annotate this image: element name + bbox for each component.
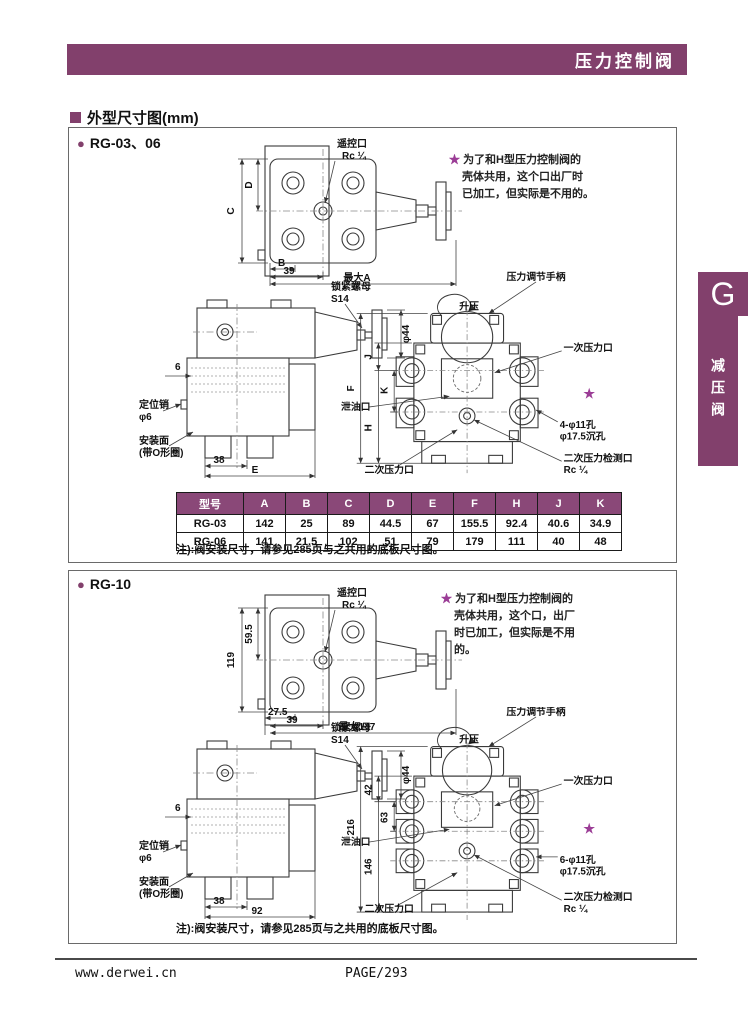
note-line: 壳体共用，这个口出厂时 [449, 169, 659, 186]
panel2-title-label: RG-10 [90, 576, 131, 592]
cell: 89 [328, 515, 370, 533]
note-line: 壳体共用，这个口，出厂 [441, 608, 656, 625]
dim-38: 38 [213, 455, 225, 466]
dim-27-5: 27.5 [268, 707, 288, 718]
dim-92: 92 [251, 906, 263, 917]
col-header: B [286, 493, 328, 515]
centerlines [256, 598, 462, 723]
handle-label: 压力调节手柄 [507, 270, 566, 283]
col-header: E [412, 493, 454, 515]
centerlines [256, 149, 462, 274]
drain-port-label: 泄油口 [341, 400, 371, 413]
note-line: 为了和H型压力控制阀的 [455, 593, 573, 605]
rg03-front-view-drawing: 压力调节手柄 升压 一次压力口 F J K H ★ 4-φ11孔 φ17.5沉孔… [339, 270, 674, 487]
panel1-title-label: RG-03、06 [90, 133, 161, 153]
mount-label: 安装面 [139, 434, 169, 447]
rg03-top-view-drawing: 遥控口 Rc ¼ C D B 39 最大A [172, 136, 472, 286]
cell: 179 [454, 533, 496, 551]
pin-label: 定位销 [139, 398, 169, 411]
raise-label: 升压 [459, 300, 479, 313]
dim-6: 6 [175, 362, 181, 373]
bullet-icon: ● [77, 136, 85, 151]
pin-dia: φ6 [139, 853, 152, 864]
panel2-title: ● RG-10 [77, 576, 131, 592]
rg10-mounting-note: 注):阀安装尺寸，请参见285页与之共用的底板尺寸图。 [176, 920, 444, 936]
pin-label: 定位销 [139, 839, 169, 852]
footer-page-number: PAGE/293 [345, 966, 408, 981]
star-icon: ★ [583, 821, 595, 836]
dim-38: 38 [213, 896, 225, 907]
spring-lines [191, 368, 285, 392]
dim-146: 146 [364, 858, 375, 875]
remote-port-label: 遥控口 [337, 586, 367, 599]
dim-59-5: 59.5 [244, 624, 255, 644]
col-header: 型号 [177, 493, 244, 515]
spring-lines [191, 809, 285, 833]
dim-h: H [364, 424, 375, 431]
table-row: RG-03 142 25 89 44.5 67 155.5 92.4 40.6 … [177, 515, 622, 533]
holes-label-2: φ17.5沉孔 [560, 430, 606, 443]
dim-39: 39 [283, 266, 295, 277]
cell: 40.6 [538, 515, 580, 533]
mount-oring: (带O形圈) [139, 446, 183, 459]
col-header: J [538, 493, 580, 515]
rg03-mounting-note: 注):阀安装尺寸，请参见285页与之共用的底板尺寸图。 [176, 541, 444, 557]
dim-f: F [346, 385, 357, 391]
rg10-front-view-drawing: 压力调节手柄 升压 一次压力口 216 42 63 146 ★ 6-φ11孔 φ… [339, 707, 674, 924]
holes-label-1: 6-φ11孔 [560, 853, 596, 866]
page-title: 压力控制阀 [575, 47, 675, 72]
cell: 142 [244, 515, 286, 533]
dim-c: C [226, 207, 237, 214]
cell: 44.5 [370, 515, 412, 533]
dimension-lines [238, 159, 456, 286]
tab-section-letter: G [698, 272, 748, 316]
dim-42: 42 [364, 784, 375, 795]
remote-port-thread: Rc ¼ [342, 151, 367, 162]
note-line: 为了和H型压力控制阀的 [463, 154, 581, 166]
dim-k: K [379, 386, 390, 394]
section-title: 外型尺寸图(mm) [87, 107, 199, 128]
remote-port-label: 遥控口 [337, 137, 367, 150]
dim-d: D [244, 181, 255, 188]
dim-e: E [252, 465, 259, 476]
centerlines [390, 743, 544, 920]
tab-category-text: 减压阀 [708, 358, 728, 424]
primary-port-label: 一次压力口 [564, 341, 613, 354]
star-icon: ★ [583, 386, 595, 401]
footer-website: www.derwei.cn [75, 966, 177, 981]
dim-j: J [364, 354, 375, 359]
col-header: F [454, 493, 496, 515]
raise-label: 升压 [459, 733, 479, 746]
tab-category-label: 减压阀 [698, 316, 738, 466]
centerlines [390, 310, 544, 474]
secondary-port-label: 二次压力口 [365, 902, 414, 915]
dim-216: 216 [346, 819, 357, 836]
cell: 48 [580, 533, 622, 551]
mount-oring: (带O形圈) [139, 887, 183, 900]
dim-6: 6 [175, 803, 181, 814]
gauge-port-label: 二次压力检测口 [564, 451, 633, 464]
cell: 155.5 [454, 515, 496, 533]
gauge-port-label: 二次压力检测口 [564, 890, 633, 903]
cell: 67 [412, 515, 454, 533]
col-header: K [580, 493, 622, 515]
cell: 25 [286, 515, 328, 533]
drain-port-label: 泄油口 [341, 835, 371, 848]
cell: RG-03 [177, 515, 244, 533]
tab-letter: G [711, 276, 736, 313]
pin-dia: φ6 [139, 412, 152, 423]
section-title-row: 外型尺寸图(mm) [70, 107, 199, 128]
panel-rg03-06: ● RG-03、06 ★ 为了和H型压力控制阀的 壳体共用，这个口出厂时 已加工… [68, 127, 677, 563]
dim-63: 63 [379, 811, 390, 822]
rg10-star-note: ★ 为了和H型压力控制阀的 壳体共用，这个口，出厂 时已加工，但实际是不用 的。 [441, 591, 656, 659]
cell: 92.4 [496, 515, 538, 533]
table-header-row: 型号 A B C D E F H J K [177, 493, 622, 515]
cell: 111 [496, 533, 538, 551]
remote-port-thread: Rc ¼ [342, 600, 367, 611]
secondary-port-label: 二次压力口 [365, 463, 414, 476]
holes-label-2: φ17.5沉孔 [560, 865, 606, 878]
dim-119: 119 [226, 651, 237, 668]
note-line: 的。 [441, 642, 656, 659]
rg03-star-note: ★ 为了和H型压力控制阀的 壳体共用，这个口出厂时 已加工，但实际是不用的。 [449, 152, 659, 203]
panel-rg10: ● RG-10 ★ 为了和H型压力控制阀的 壳体共用，这个口，出厂 时已加工，但… [68, 570, 677, 944]
bullet-icon: ● [77, 577, 85, 592]
gauge-port-thread: Rc ¼ [564, 465, 588, 476]
col-header: D [370, 493, 412, 515]
footer-divider [55, 958, 697, 960]
col-header: C [328, 493, 370, 515]
cell: 34.9 [580, 515, 622, 533]
note-line: 已加工，但实际是不用的。 [449, 186, 659, 203]
mount-label: 安装面 [139, 875, 169, 888]
gauge-port-thread: Rc ¼ [564, 904, 588, 915]
panel1-title: ● RG-03、06 [77, 133, 161, 153]
section-square-icon [70, 112, 81, 123]
col-header: A [244, 493, 286, 515]
holes-label-1: 4-φ11孔 [560, 418, 596, 431]
col-header: H [496, 493, 538, 515]
handle-label: 压力调节手柄 [507, 707, 566, 718]
primary-port-label: 一次压力口 [564, 774, 613, 787]
page-header-bar: 压力控制阀 [67, 44, 687, 75]
cell: 40 [538, 533, 580, 551]
note-line: 时已加工，但实际是不用 [441, 625, 656, 642]
